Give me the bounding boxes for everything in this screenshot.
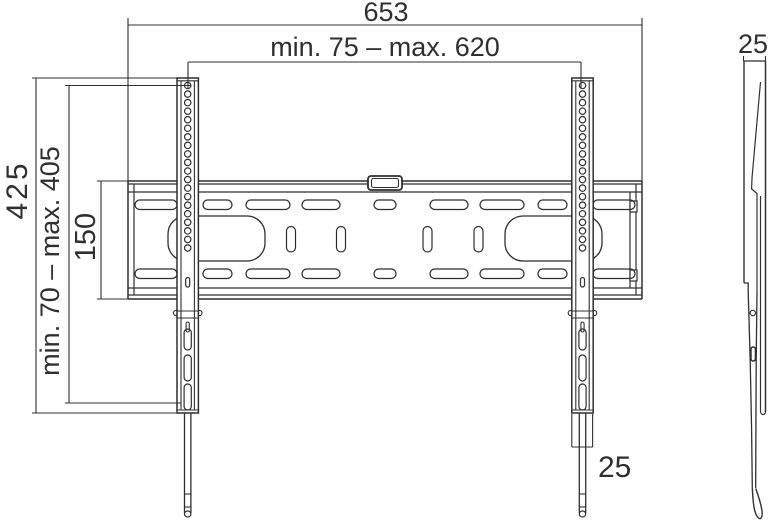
side-view-profile [744,56,766,519]
dimension-labels: 653 min. 75 – max. 620 425 min. 70 – max… [1,0,768,484]
dim-plate-height-label: 150 [70,213,102,261]
dim-rail-width-label: 25 [598,451,631,484]
dim-profile-depth-label: 25 [738,29,768,59]
dim-overall-width-label: 653 [363,0,408,27]
technical-drawing-page: 653 min. 75 – max. 620 425 min. 70 – max… [0,0,770,527]
front-view-wall-plate [128,176,642,299]
dim-height-range-label: min. 70 – max. 405 [35,146,65,376]
front-view-vertical-rails [173,78,596,517]
dim-width-range-label: min. 75 – max. 620 [270,32,500,62]
wall-mount-drawing: 653 min. 75 – max. 620 425 min. 70 – max… [0,0,770,527]
dim-overall-height-label: 425 [1,160,34,219]
